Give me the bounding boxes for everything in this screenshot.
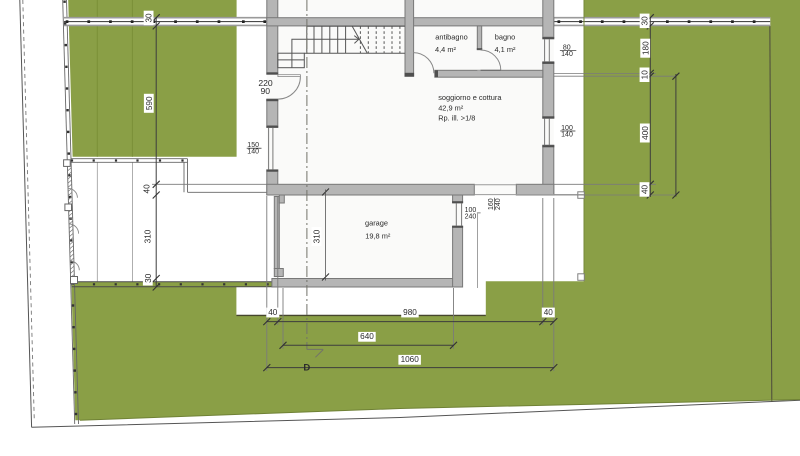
svg-text:40: 40 bbox=[641, 185, 650, 195]
svg-text:D: D bbox=[303, 362, 310, 373]
svg-text:30: 30 bbox=[145, 13, 154, 23]
svg-text:4,1 m²: 4,1 m² bbox=[495, 45, 516, 54]
svg-text:140: 140 bbox=[561, 131, 573, 138]
svg-text:40: 40 bbox=[143, 184, 152, 194]
svg-text:980: 980 bbox=[403, 308, 417, 317]
svg-text:bagno: bagno bbox=[495, 33, 516, 42]
svg-text:640: 640 bbox=[360, 332, 374, 341]
svg-text:40: 40 bbox=[544, 308, 554, 317]
svg-text:30: 30 bbox=[641, 16, 650, 26]
svg-text:590: 590 bbox=[145, 96, 154, 110]
svg-text:soggiorno e cottura: soggiorno e cottura bbox=[438, 93, 502, 102]
svg-text:19,8 m²: 19,8 m² bbox=[365, 231, 391, 240]
svg-text:40: 40 bbox=[268, 308, 278, 317]
svg-text:240: 240 bbox=[495, 198, 502, 210]
svg-text:140: 140 bbox=[561, 51, 573, 58]
svg-text:140: 140 bbox=[247, 148, 259, 155]
svg-text:310: 310 bbox=[143, 229, 152, 243]
svg-text:180: 180 bbox=[641, 41, 650, 55]
svg-text:30: 30 bbox=[144, 273, 153, 283]
svg-text:310: 310 bbox=[313, 229, 322, 243]
svg-text:400: 400 bbox=[641, 126, 650, 140]
svg-text:10: 10 bbox=[641, 70, 650, 80]
svg-text:1060: 1060 bbox=[401, 355, 420, 364]
svg-text:4,4 m²: 4,4 m² bbox=[435, 45, 456, 54]
svg-text:antibagno: antibagno bbox=[435, 33, 467, 42]
svg-text:90: 90 bbox=[261, 86, 271, 96]
svg-text:Rp. ill. >1/8: Rp. ill. >1/8 bbox=[438, 114, 475, 123]
svg-text:42,9 m²: 42,9 m² bbox=[438, 104, 464, 113]
svg-text:240: 240 bbox=[465, 214, 477, 221]
svg-text:garage: garage bbox=[365, 218, 388, 227]
